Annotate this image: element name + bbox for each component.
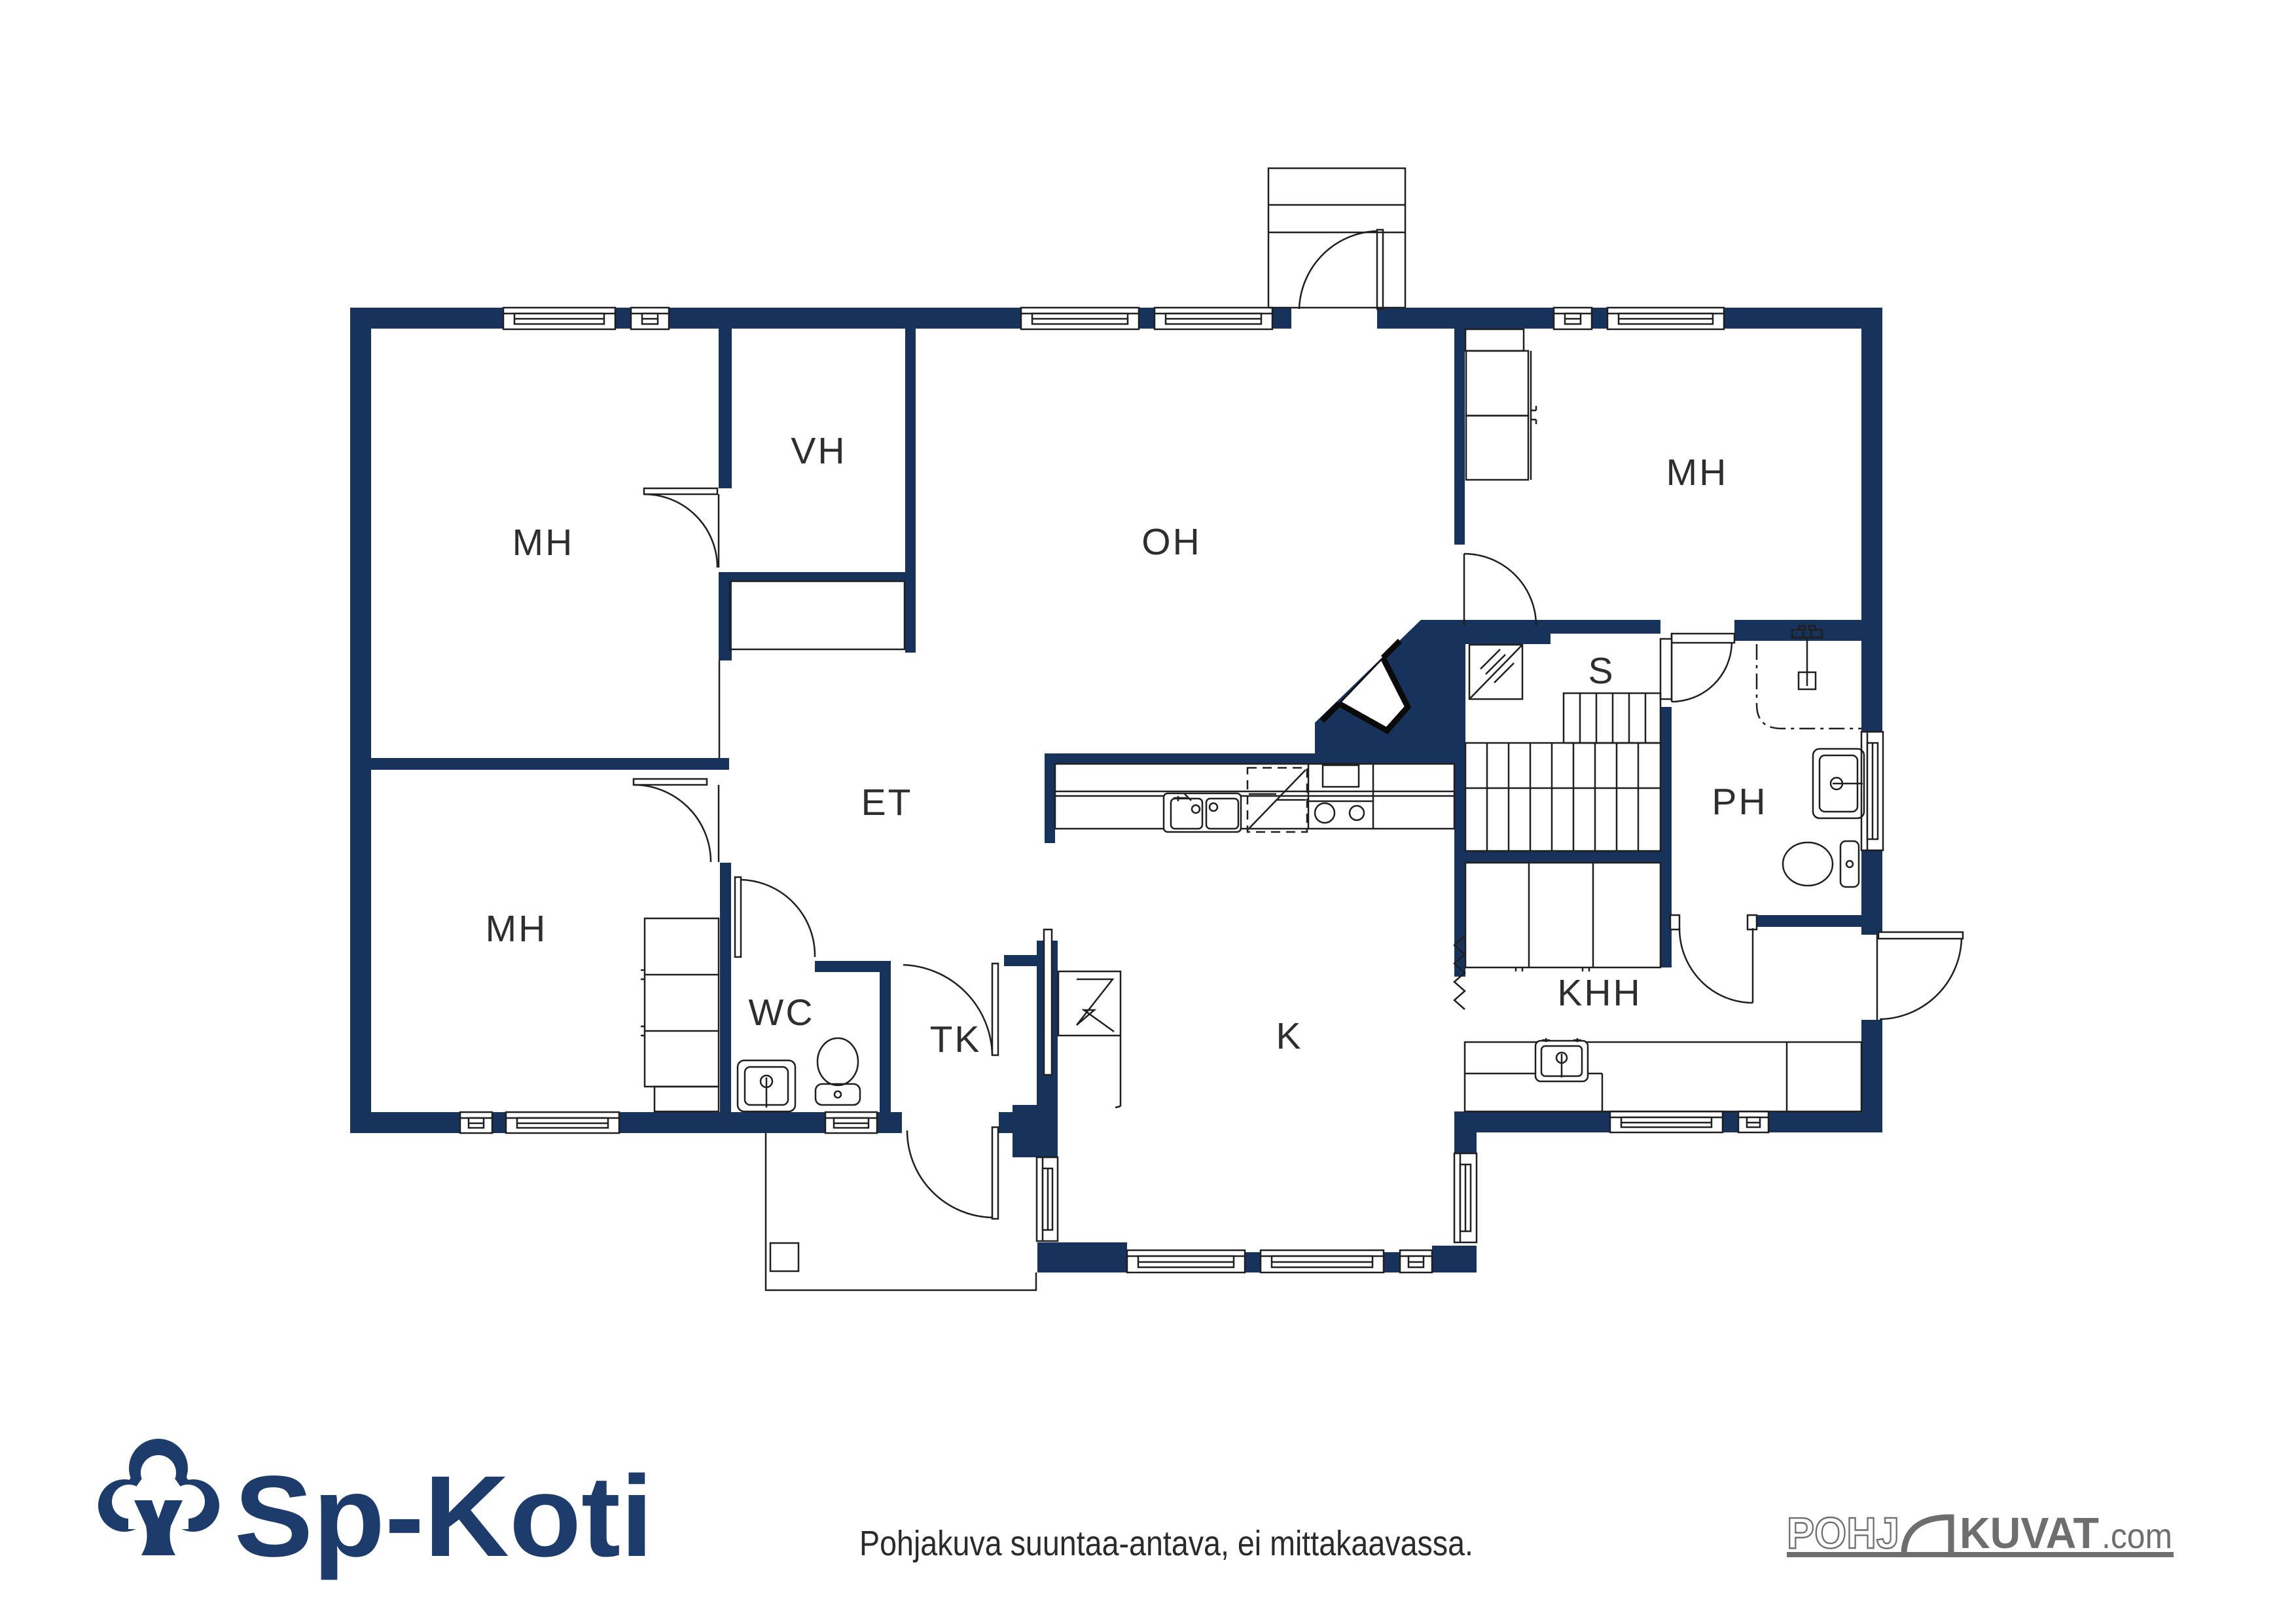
svg-text:S: S xyxy=(1588,650,1615,692)
svg-text:OH: OH xyxy=(1141,521,1202,563)
svg-text:MH: MH xyxy=(486,908,548,950)
svg-text:Pohjakuva suuntaa-antava, ei m: Pohjakuva suuntaa-antava, ei mittakaavas… xyxy=(859,1524,1473,1563)
svg-text:VH: VH xyxy=(791,430,846,472)
svg-text:WC: WC xyxy=(749,992,815,1034)
svg-text:Sp-Koti: Sp-Koti xyxy=(234,1453,653,1581)
svg-text:K: K xyxy=(1276,1015,1302,1057)
svg-text:PH: PH xyxy=(1712,781,1767,823)
svg-text:POHJ: POHJ xyxy=(1787,1509,1899,1558)
svg-text:KUVAT: KUVAT xyxy=(1960,1509,2099,1558)
svg-text:TK: TK xyxy=(930,1019,982,1060)
svg-text:ET: ET xyxy=(861,782,913,823)
svg-text:.com: .com xyxy=(2102,1517,2172,1556)
svg-text:MH: MH xyxy=(512,522,575,564)
svg-text:KHH: KHH xyxy=(1557,972,1641,1014)
svg-text:MH: MH xyxy=(1666,452,1729,494)
